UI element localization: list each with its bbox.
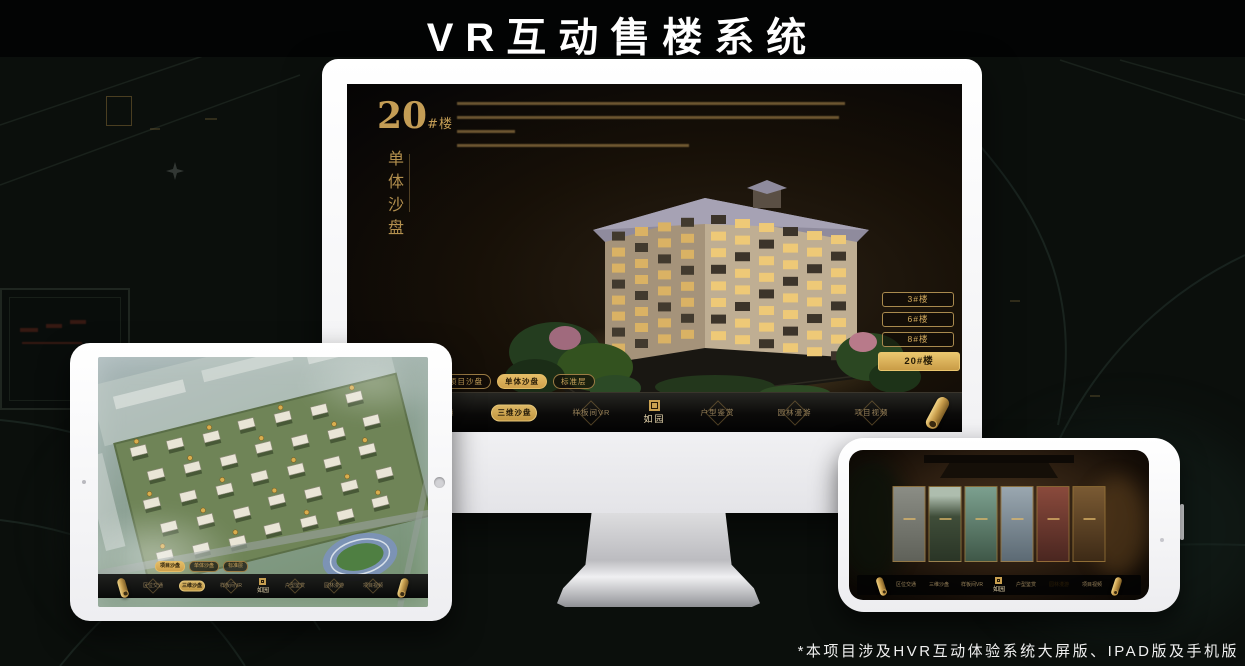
phone-side-button[interactable] bbox=[1180, 504, 1184, 540]
scene-panel-sketch[interactable] bbox=[893, 486, 926, 562]
floor-button-8[interactable]: 8#楼 bbox=[882, 332, 954, 347]
floor-button-6[interactable]: 6#楼 bbox=[882, 312, 954, 327]
tablet-screen: 项目沙盘 单体沙盘 标准层 区位交通 三维沙盘 样板间VR 如园 户型鉴赏 园林… bbox=[98, 357, 428, 607]
subtab-single-sandtable[interactable]: 单体沙盘 bbox=[189, 561, 219, 572]
description-line bbox=[457, 102, 845, 105]
phone-navbar: 区位交通 三维沙盘 样板间VR 如园 户型鉴赏 园林漫游 项目视频 bbox=[857, 575, 1141, 595]
scroll-icon[interactable] bbox=[116, 577, 129, 598]
seal-icon bbox=[995, 577, 1002, 584]
tablet-mockup: 项目沙盘 单体沙盘 标准层 区位交通 三维沙盘 样板间VR 如园 户型鉴赏 园林… bbox=[70, 343, 452, 621]
scene-panel-red-building[interactable] bbox=[1037, 486, 1070, 562]
nav-item-showroom-vr[interactable]: 样板间VR bbox=[218, 580, 244, 592]
brand-logo: 如园 bbox=[257, 578, 269, 594]
nav-item-garden-roam[interactable]: 园林漫游 bbox=[321, 580, 347, 592]
pavilion-roof bbox=[940, 463, 1058, 478]
nav-item-unit-plans[interactable]: 户型鉴赏 bbox=[282, 580, 308, 592]
phone-screen: 区位交通 三维沙盘 样板间VR 如园 户型鉴赏 园林漫游 项目视频 bbox=[849, 450, 1149, 600]
nav-item-unit-plans[interactable]: 户型鉴赏 bbox=[693, 402, 743, 424]
scroll-icon[interactable] bbox=[875, 576, 888, 596]
page-title: VR互动售楼系统 bbox=[0, 5, 1245, 63]
phone-camera-icon bbox=[1160, 538, 1164, 542]
subtab-single-sandtable[interactable]: 单体沙盘 bbox=[497, 374, 547, 389]
scene-panel-bookshelf[interactable] bbox=[1073, 486, 1106, 562]
scene-panel-row bbox=[893, 486, 1106, 562]
nav-item-3d-sandtable[interactable]: 三维沙盘 bbox=[927, 580, 951, 591]
pavilion-roof bbox=[924, 455, 1074, 463]
subtab-standard-floor[interactable]: 标准层 bbox=[553, 374, 595, 389]
nav-item-project-video[interactable]: 项目视频 bbox=[847, 402, 897, 424]
nav-item-project-video[interactable]: 项目视频 bbox=[1080, 580, 1104, 591]
subtitle-vertical: 单体沙盘 bbox=[382, 150, 406, 242]
compass-star-icon bbox=[166, 162, 184, 180]
description-line bbox=[457, 116, 839, 119]
nav-item-3d-sandtable[interactable]: 三维沙盘 bbox=[179, 580, 205, 592]
monitor-subtabs: 项目沙盘 单体沙盘 标准层 bbox=[441, 374, 595, 389]
nav-item-3d-sandtable[interactable]: 三维沙盘 bbox=[489, 402, 539, 424]
subtitle-rule bbox=[409, 154, 410, 212]
floor-button-3[interactable]: 3#楼 bbox=[882, 292, 954, 307]
building-heading: 20#楼 bbox=[377, 98, 453, 134]
nav-item-location[interactable]: 区位交通 bbox=[140, 580, 166, 592]
tablet-camera-icon bbox=[82, 480, 86, 484]
scroll-icon[interactable] bbox=[1110, 576, 1123, 596]
seal-icon bbox=[259, 578, 266, 585]
tablet-home-button[interactable] bbox=[434, 477, 445, 488]
nav-item-garden-roam[interactable]: 园林漫游 bbox=[770, 402, 820, 424]
subtab-standard-floor[interactable]: 标准层 bbox=[223, 561, 248, 572]
poster-canvas: VR互动售楼系统 *本项目涉及HVR互动体验系统大屏版、IPAD版及手机版 20… bbox=[0, 0, 1245, 666]
nav-item-showroom-vr[interactable]: 样板间VR bbox=[960, 580, 984, 591]
nav-item-unit-plans[interactable]: 户型鉴赏 bbox=[1014, 580, 1038, 591]
background-gold-frame bbox=[106, 96, 132, 126]
scroll-icon[interactable] bbox=[396, 577, 409, 598]
scene-panel-building[interactable] bbox=[1001, 486, 1034, 562]
floor-button-group: 3#楼 6#楼 8#楼 20#楼 bbox=[878, 292, 958, 376]
description-line bbox=[457, 130, 515, 133]
seal-icon bbox=[649, 400, 660, 411]
tablet-subtabs: 项目沙盘 单体沙盘 标准层 bbox=[155, 561, 248, 572]
phone-mockup: 区位交通 三维沙盘 样板间VR 如园 户型鉴赏 园林漫游 项目视频 bbox=[838, 438, 1180, 612]
tablet-navbar: 区位交通 三维沙盘 样板间VR 如园 户型鉴赏 园林漫游 项目视频 bbox=[98, 574, 428, 598]
description-line bbox=[457, 144, 689, 147]
floor-button-20[interactable]: 20#楼 bbox=[878, 352, 960, 371]
scroll-icon[interactable] bbox=[924, 395, 951, 431]
nav-item-location[interactable]: 区位交通 bbox=[894, 580, 918, 591]
nav-item-garden-roam[interactable]: 园林漫游 bbox=[1047, 580, 1071, 591]
footnote: *本项目涉及HVR互动体验系统大屏版、IPAD版及手机版 bbox=[798, 640, 1239, 661]
nav-item-showroom-vr[interactable]: 样板间VR bbox=[566, 402, 616, 424]
brand-logo: 如园 bbox=[643, 400, 665, 425]
subtab-project-sandtable[interactable]: 项目沙盘 bbox=[155, 561, 185, 572]
brand-logo: 如园 bbox=[993, 577, 1005, 593]
nav-item-project-video[interactable]: 项目视频 bbox=[360, 580, 386, 592]
scene-panel-garden[interactable] bbox=[965, 486, 998, 562]
scene-panel-courtyard[interactable] bbox=[929, 486, 962, 562]
